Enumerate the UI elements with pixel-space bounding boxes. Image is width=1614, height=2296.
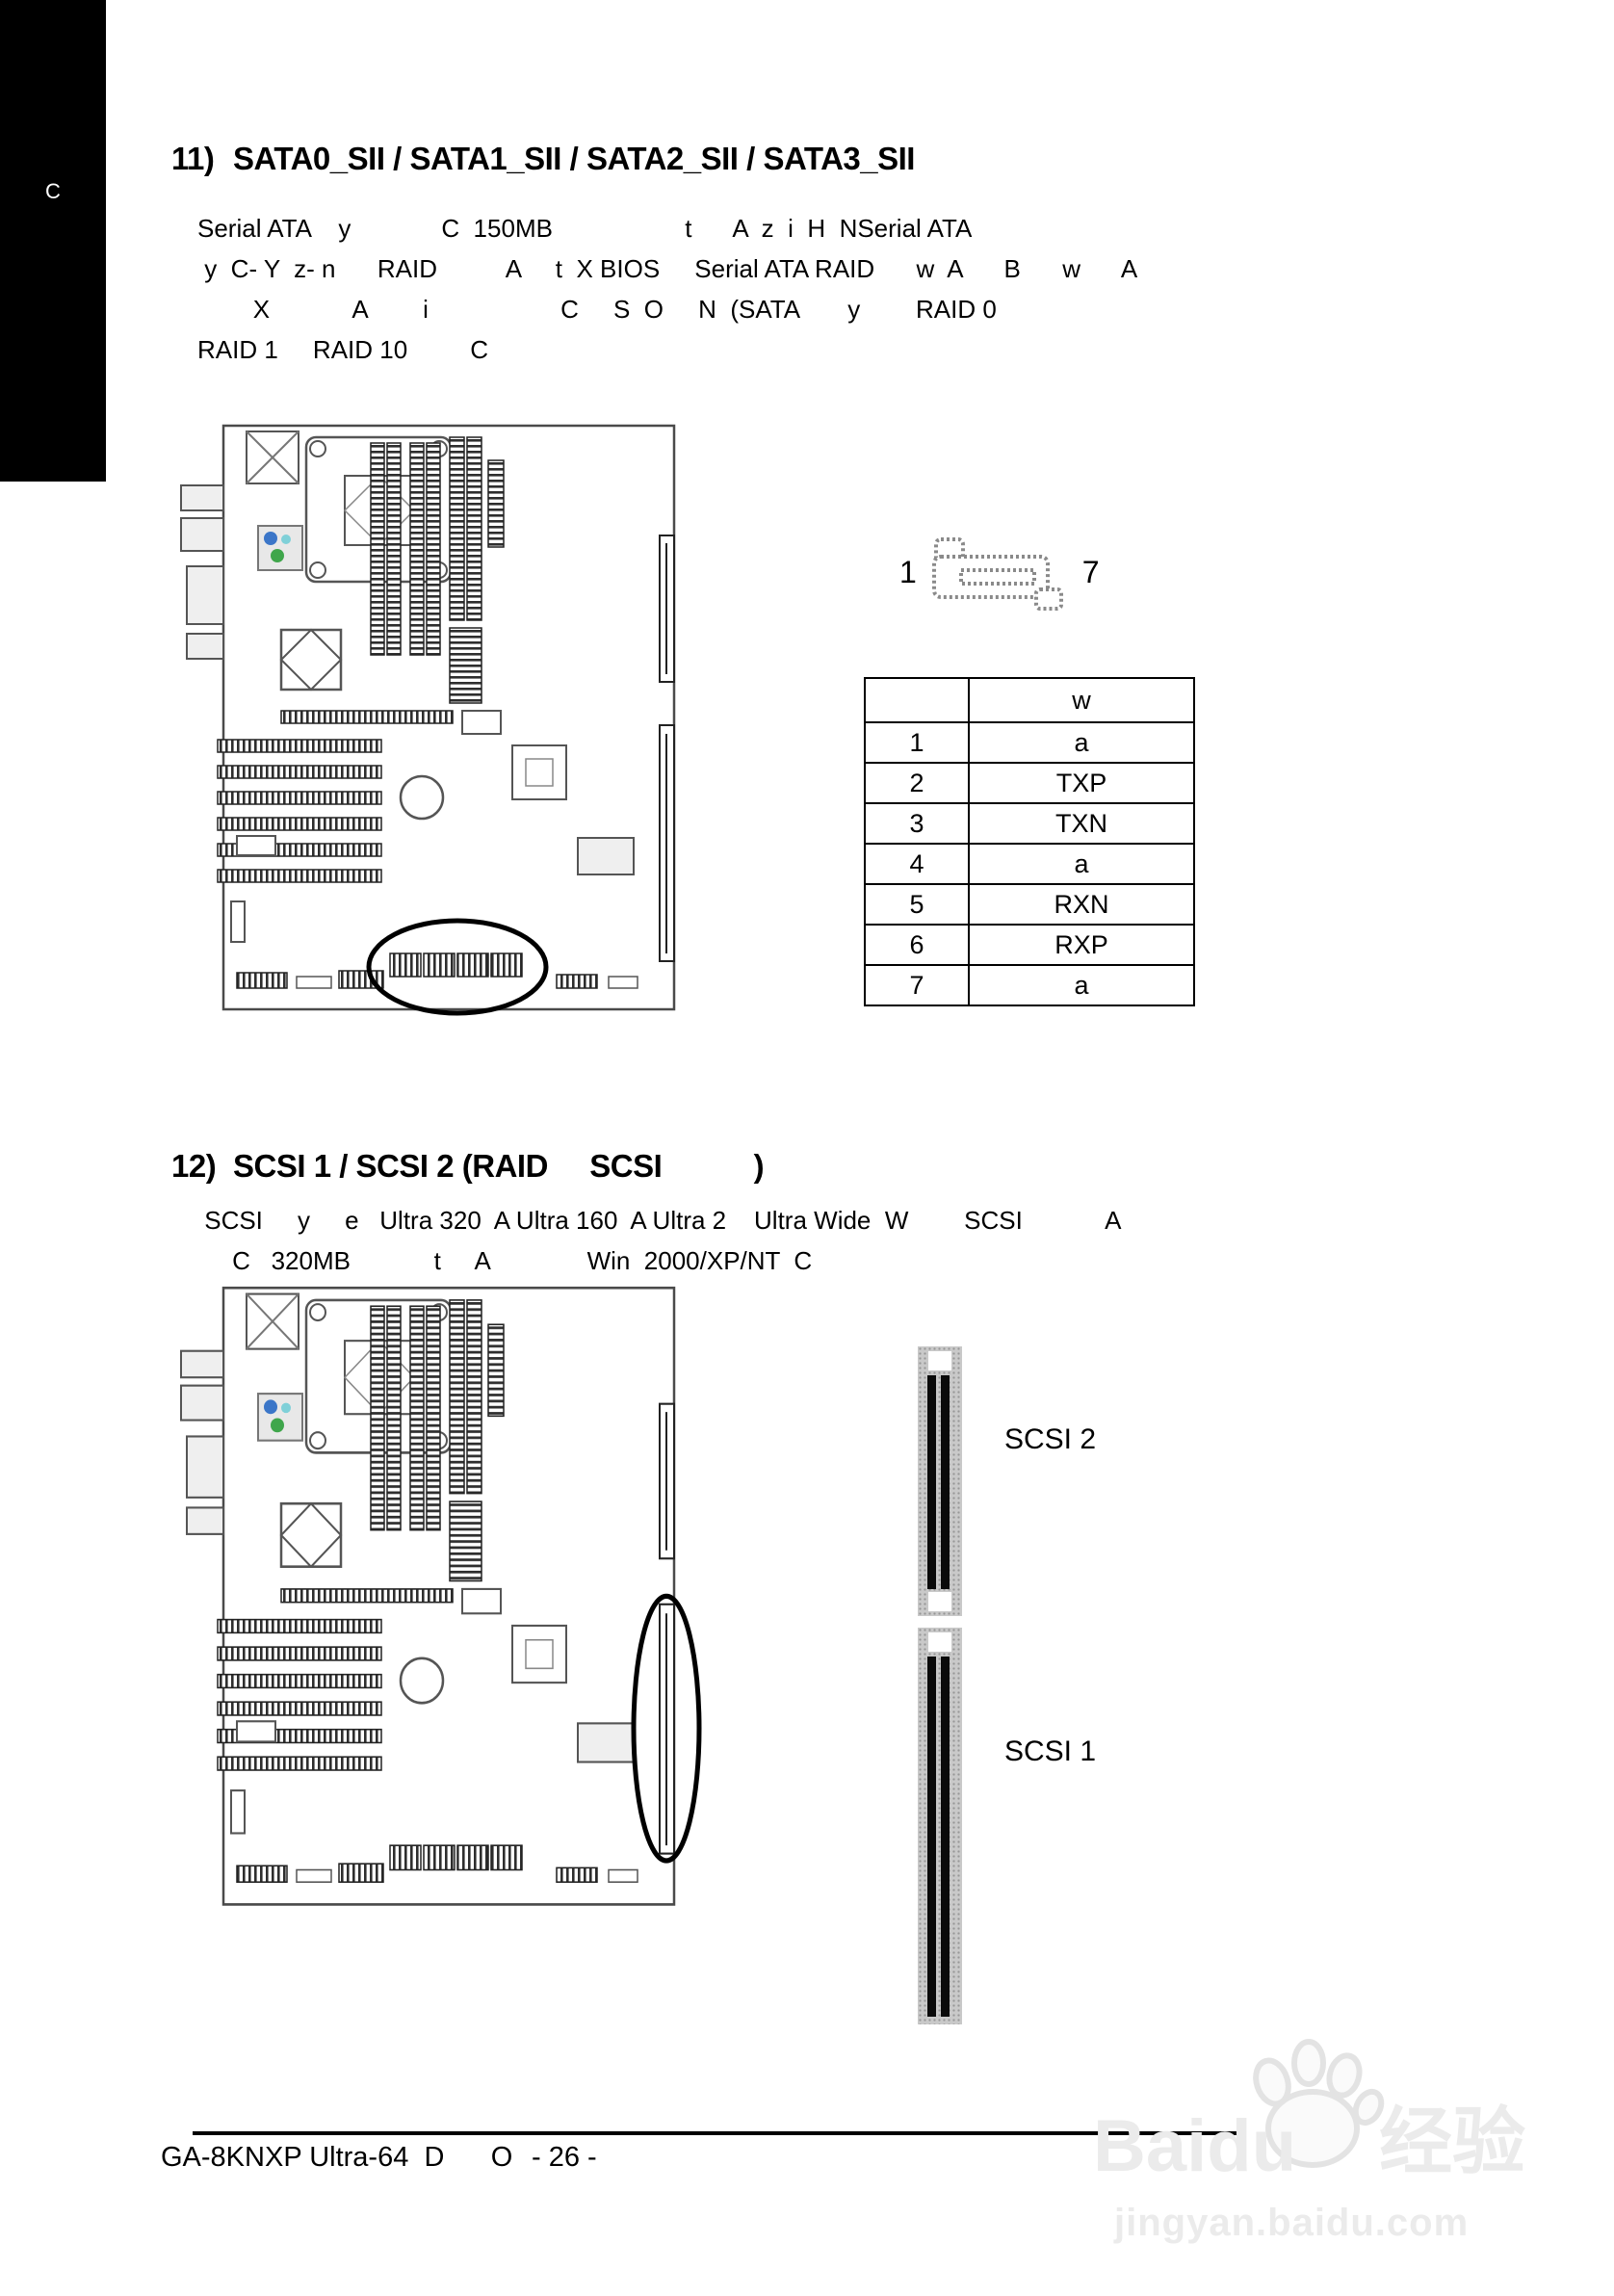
section12-body-line: SCSI y e Ultra 320 A Ultra 160 A Ultra 2… — [197, 1200, 1121, 1240]
signal-cell: RXN — [969, 884, 1194, 925]
section11-body: Serial ATA y C 150MB t A z i H NSerial A… — [197, 208, 1137, 370]
section12-body: SCSI y e Ultra 320 A Ultra 160 A Ultra 2… — [197, 1200, 1121, 1281]
section12-number: 12) — [171, 1148, 233, 1185]
scsi2-connector-icon — [918, 1346, 962, 1616]
section12-heading: 12) SCSI 1 / SCSI 2 (RAID SCSI ) — [171, 1148, 764, 1185]
connector-notch — [928, 1592, 951, 1611]
pin1-label: 1 — [894, 555, 923, 590]
section11-number: 11) — [171, 141, 233, 177]
section11-heading: 11) SATA0_SII / SATA1_SII / SATA2_SII / … — [171, 141, 915, 177]
scsi1-label: SCSI 1 — [1004, 1735, 1096, 1768]
section12-title: SCSI 1 / SCSI 2 (RAID SCSI ) — [233, 1148, 764, 1185]
connector-stripe — [927, 1657, 936, 2017]
signal-cell: TXN — [969, 803, 1194, 844]
table-header-row: w — [865, 678, 1194, 722]
sata-connector-icon — [923, 530, 1077, 614]
signal-cell: TXP — [969, 763, 1194, 803]
motherboard-diagram-sata — [173, 422, 713, 1019]
watermark-url: jingyan.baidu.com — [1114, 2202, 1613, 2245]
sata-connector-figure: 1 7 — [894, 530, 1106, 614]
header-cell — [865, 678, 969, 722]
footer-model: GA-8KNXP Ultra-64 D O — [161, 2142, 512, 2174]
signal-cell: a — [969, 844, 1194, 884]
pin-cell: 6 — [865, 925, 969, 965]
table-row: 6 RXP — [865, 925, 1194, 965]
connector-stripe — [927, 1375, 936, 1589]
watermark-brand-text: Baidu — [1093, 2104, 1296, 2188]
pin-cell: 3 — [865, 803, 969, 844]
pin-cell: 1 — [865, 722, 969, 763]
scsi2-label: SCSI 2 — [1004, 1423, 1096, 1456]
connector-stripe — [941, 1657, 950, 2017]
section11-body-line: y C- Y z- n RAID A t X BIOS Serial ATA R… — [197, 248, 1137, 289]
footer-page-number: - 26 - — [532, 2142, 597, 2174]
scsi1-connector-icon — [918, 1628, 962, 2024]
signal-cell: a — [969, 722, 1194, 763]
table-row: 3 TXN — [865, 803, 1194, 844]
header-cell: w — [969, 678, 1194, 722]
table-row: 5 RXN — [865, 884, 1194, 925]
footer-divider — [193, 2131, 1240, 2135]
pin-cell: 7 — [865, 965, 969, 1005]
chapter-tab-label: C — [0, 179, 106, 204]
pin-cell: 2 — [865, 763, 969, 803]
section11-body-line: RAID 1 RAID 10 C — [197, 329, 1137, 370]
connector-notch — [928, 1632, 951, 1652]
watermark-brand-suffix: 经验 — [1379, 2082, 1525, 2188]
pin-cell: 4 — [865, 844, 969, 884]
pin-cell: 5 — [865, 884, 969, 925]
connector-stripe — [941, 1375, 950, 1589]
table-row: 7 a — [865, 965, 1194, 1005]
sata-pin-table: w 1 a 2 TXP 3 TXN 4 a 5 RXN 6 RXP 7 a — [864, 677, 1195, 1006]
chapter-tab — [0, 0, 106, 482]
connector-notch — [928, 1351, 951, 1370]
watermark-brand: Baidu 经验 — [1093, 2082, 1613, 2188]
table-row: 1 a — [865, 722, 1194, 763]
table-row: 4 a — [865, 844, 1194, 884]
pin7-label: 7 — [1077, 555, 1106, 590]
section11-body-line: X A i C S O N (SATA y RAID 0 — [197, 289, 1137, 329]
section12-body-line: C 320MB t A Win 2000/XP/NT C — [197, 1240, 1121, 1281]
signal-cell: RXP — [969, 925, 1194, 965]
section11-body-line: Serial ATA y C 150MB t A z i H NSerial A… — [197, 208, 1137, 248]
signal-cell: a — [969, 965, 1194, 1005]
watermark: Baidu 经验 jingyan.baidu.com — [1093, 2082, 1613, 2245]
table-row: 2 TXP — [865, 763, 1194, 803]
motherboard-diagram-scsi — [173, 1284, 713, 1915]
section11-title: SATA0_SII / SATA1_SII / SATA2_SII / SATA… — [233, 141, 915, 177]
